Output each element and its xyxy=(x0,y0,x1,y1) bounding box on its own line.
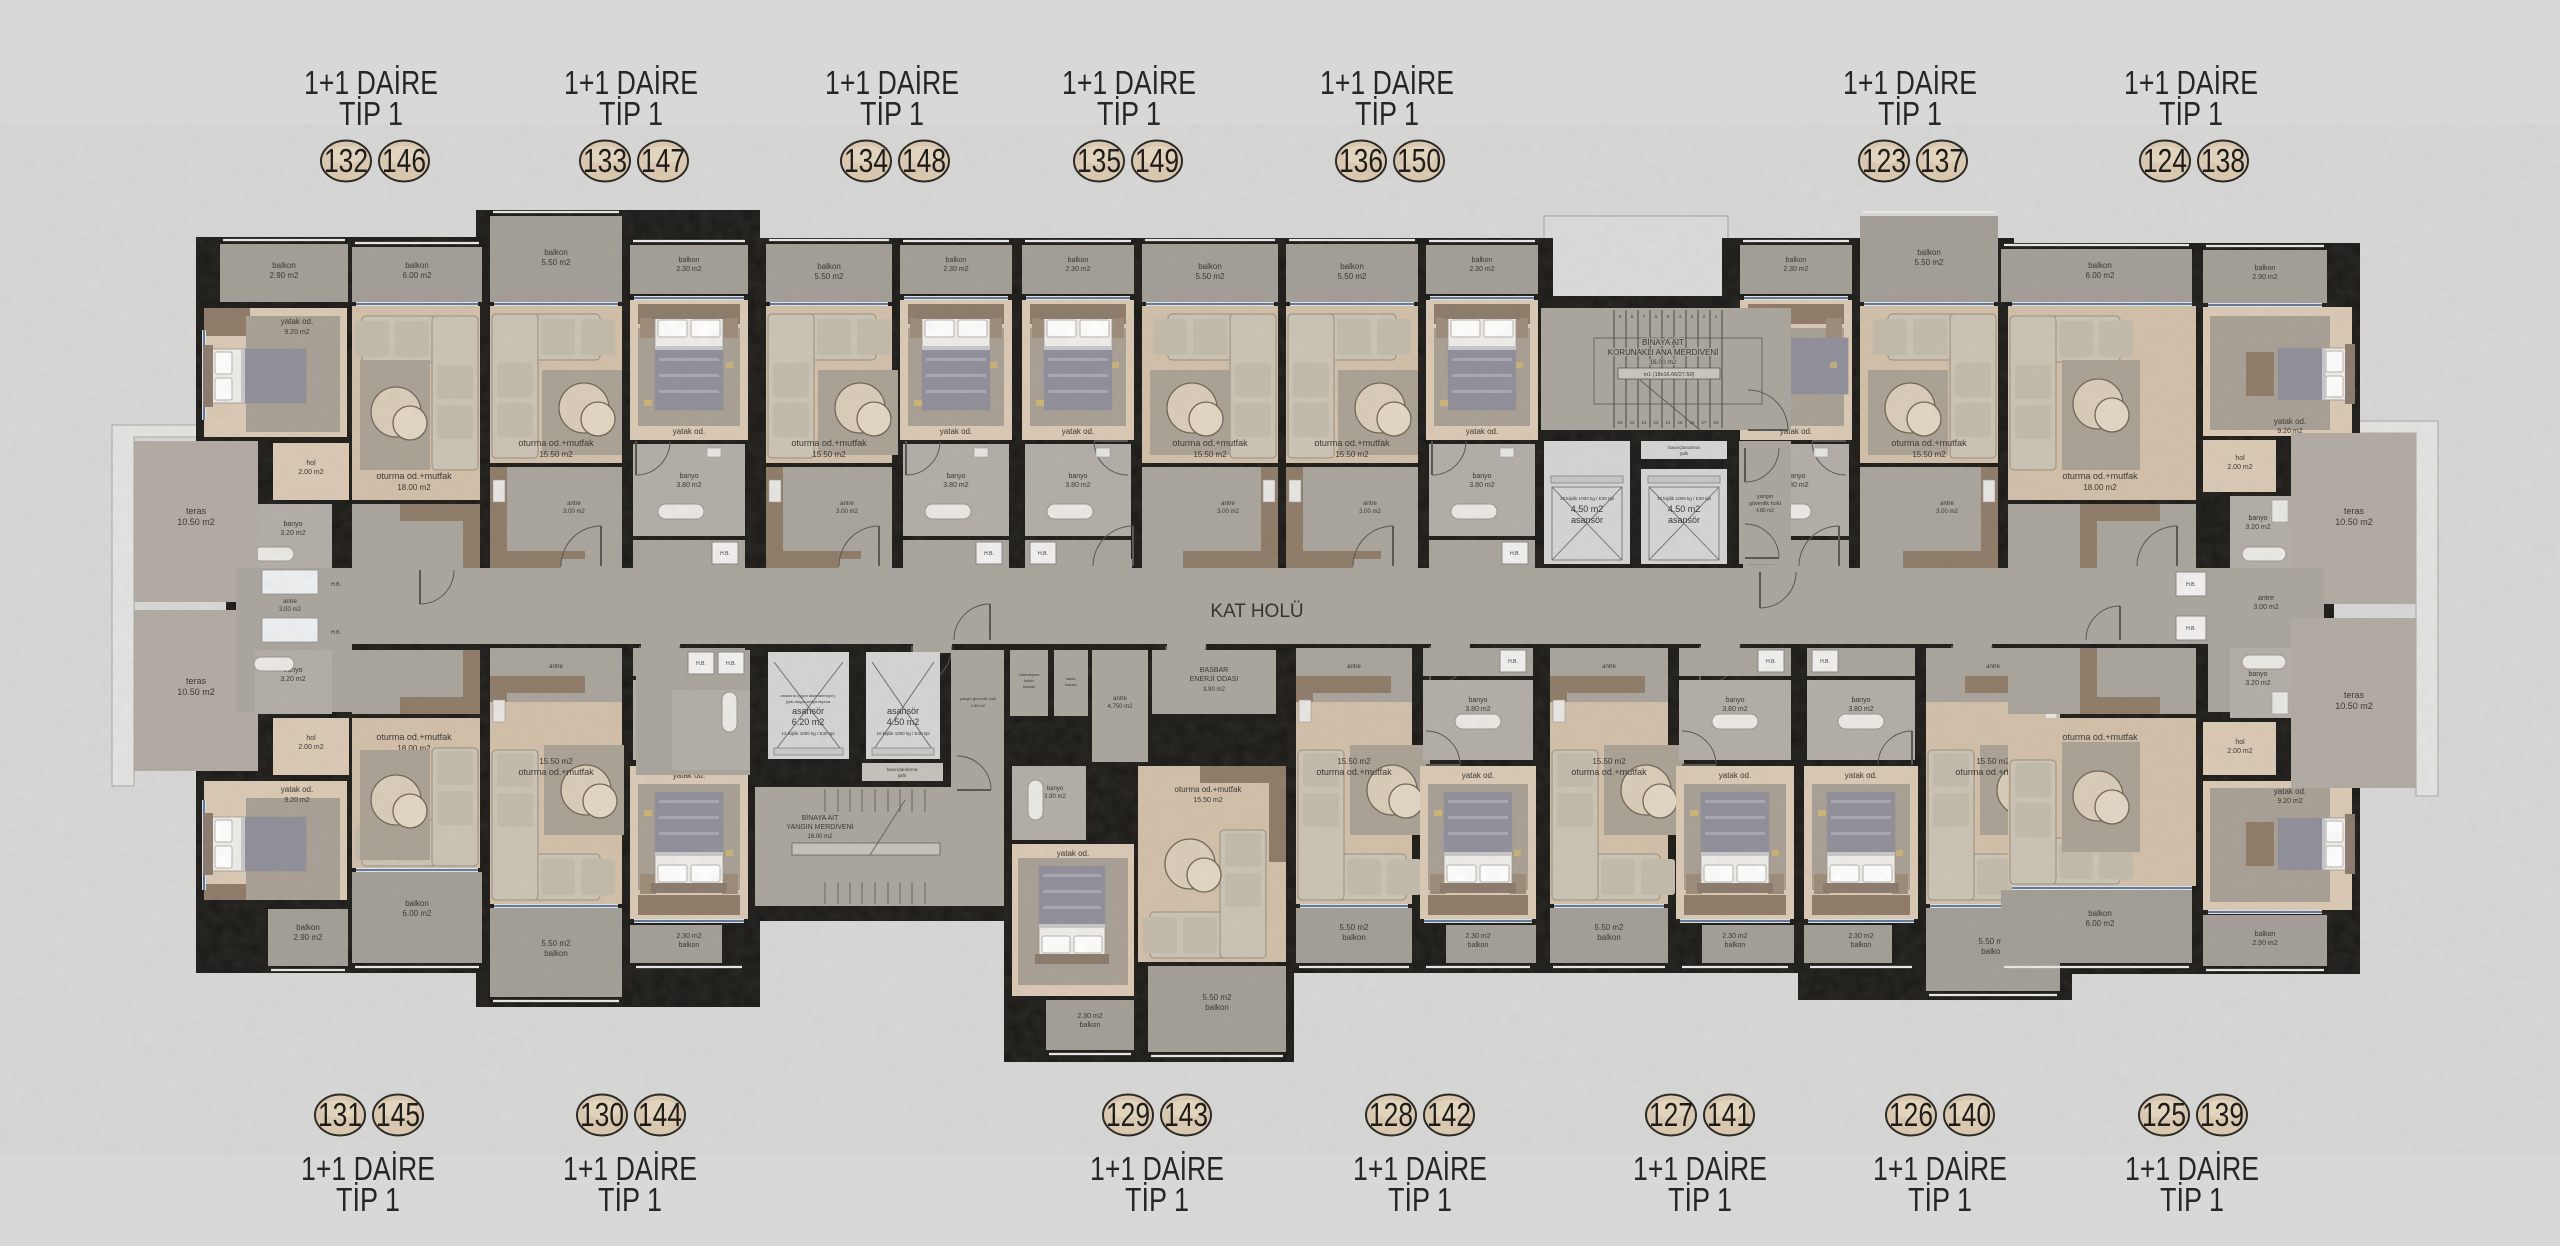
svg-text:136: 136 xyxy=(1339,142,1383,179)
svg-text:139: 139 xyxy=(2200,1096,2244,1133)
svg-text:135: 135 xyxy=(1077,142,1121,179)
svg-text:147: 147 xyxy=(641,142,685,179)
svg-text:127: 127 xyxy=(1649,1096,1693,1133)
svg-text:149: 149 xyxy=(1135,142,1179,179)
svg-text:145: 145 xyxy=(376,1096,420,1133)
svg-text:140: 140 xyxy=(1947,1096,1991,1133)
svg-text:144: 144 xyxy=(638,1096,682,1133)
svg-text:129: 129 xyxy=(1106,1096,1150,1133)
svg-text:TİP 1: TİP 1 xyxy=(1388,1181,1452,1218)
svg-text:142: 142 xyxy=(1427,1096,1471,1133)
svg-text:TİP 1: TİP 1 xyxy=(1668,1181,1732,1218)
svg-text:134: 134 xyxy=(844,142,888,179)
svg-text:TİP 1: TİP 1 xyxy=(599,95,663,132)
svg-text:138: 138 xyxy=(2201,142,2245,179)
svg-text:131: 131 xyxy=(318,1096,362,1133)
svg-text:125: 125 xyxy=(2142,1096,2186,1133)
svg-text:TİP 1: TİP 1 xyxy=(2159,95,2223,132)
svg-text:TİP 1: TİP 1 xyxy=(1878,95,1942,132)
svg-text:123: 123 xyxy=(1862,142,1906,179)
svg-text:141: 141 xyxy=(1707,1096,1751,1133)
svg-text:126: 126 xyxy=(1889,1096,1933,1133)
svg-text:150: 150 xyxy=(1397,142,1441,179)
svg-text:TİP 1: TİP 1 xyxy=(860,95,924,132)
svg-text:TİP 1: TİP 1 xyxy=(2160,1181,2224,1218)
svg-text:TİP 1: TİP 1 xyxy=(1125,1181,1189,1218)
svg-text:TİP 1: TİP 1 xyxy=(1908,1181,1972,1218)
svg-text:146: 146 xyxy=(382,142,426,179)
svg-text:TİP 1: TİP 1 xyxy=(598,1181,662,1218)
svg-text:133: 133 xyxy=(583,142,627,179)
svg-text:137: 137 xyxy=(1920,142,1964,179)
svg-text:130: 130 xyxy=(580,1096,624,1133)
svg-text:TİP 1: TİP 1 xyxy=(1097,95,1161,132)
svg-text:132: 132 xyxy=(324,142,368,179)
svg-text:TİP 1: TİP 1 xyxy=(336,1181,400,1218)
svg-text:124: 124 xyxy=(2143,142,2187,179)
svg-text:148: 148 xyxy=(902,142,946,179)
svg-text:TİP 1: TİP 1 xyxy=(1355,95,1419,132)
svg-text:128: 128 xyxy=(1369,1096,1413,1133)
svg-text:TİP 1: TİP 1 xyxy=(339,95,403,132)
svg-text:143: 143 xyxy=(1164,1096,1208,1133)
